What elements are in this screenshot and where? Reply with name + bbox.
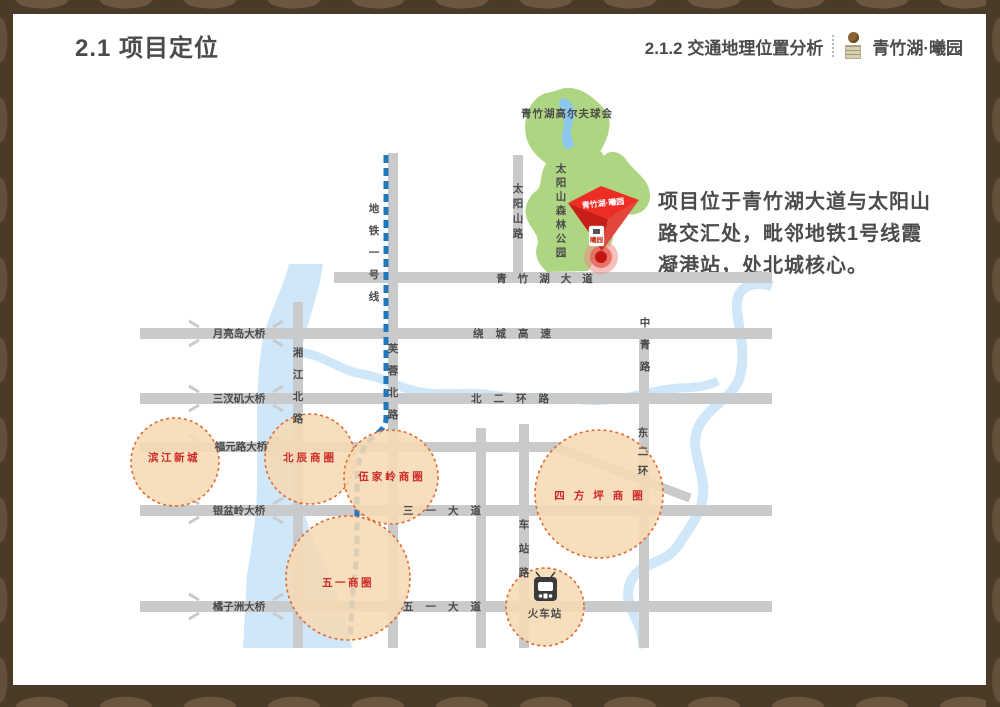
location-map: 青竹湖高尔夫球会 太阳山森林公园 青竹湖大道 绕城高速 北二环路 三一大道 五一… [0, 0, 1000, 707]
bridge-label-yinpenling: 银盆岭大桥 [213, 504, 266, 517]
railway-station-label: 火车站 [528, 607, 563, 620]
district-label-beichen: 北辰商圈 [283, 451, 337, 464]
metro-line-label: 地铁一号线 [369, 202, 380, 303]
road-label-dongerhuan: 东二环 [638, 426, 649, 477]
bridge-label-yueliangdao: 月亮岛大桥 [212, 327, 266, 340]
road-label-zhongqing: 中青路 [640, 316, 651, 373]
road-label-qingzhuhu-avenue: 青竹湖大道 [496, 272, 604, 285]
bridge-label-juzizhou: 橘子洲大桥 [212, 600, 266, 613]
road-label-sanyi-avenue: 三一大道 [403, 504, 493, 517]
road-label-ring-expressway: 绕城高速 [473, 327, 563, 340]
road-label-north-2nd-ring: 北二环路 [471, 392, 561, 405]
bridge-label-fuyuanlu: 福元路大桥 [214, 440, 268, 453]
road-minor-vertical [476, 428, 486, 648]
forest-park-label: 太阳山森林公园 [555, 162, 567, 259]
district-label-sifangping: 四方坪商圈 [554, 489, 652, 502]
golf-park-label: 青竹湖高尔夫球会 [521, 107, 613, 120]
marker-badge-text: 曦园 [590, 235, 604, 244]
slide: 2.1 项目定位 2.1.2 交通地理位置分析 青竹湖·曦园 项目位于青竹湖大道… [0, 0, 1000, 707]
bridge-label-sanchaji: 三汊矶大桥 [213, 392, 266, 405]
marker-ring-core [595, 251, 607, 263]
road-label-chezhan: 车站路 [519, 518, 530, 579]
district-label-binjiang: 滨江新城 [148, 451, 200, 464]
district-label-wujialing: 伍家岭商圈 [357, 470, 426, 483]
district-label-wuyi: 五一商圈 [322, 576, 374, 589]
road-label-wuyi-avenue: 五一大道 [403, 600, 493, 613]
